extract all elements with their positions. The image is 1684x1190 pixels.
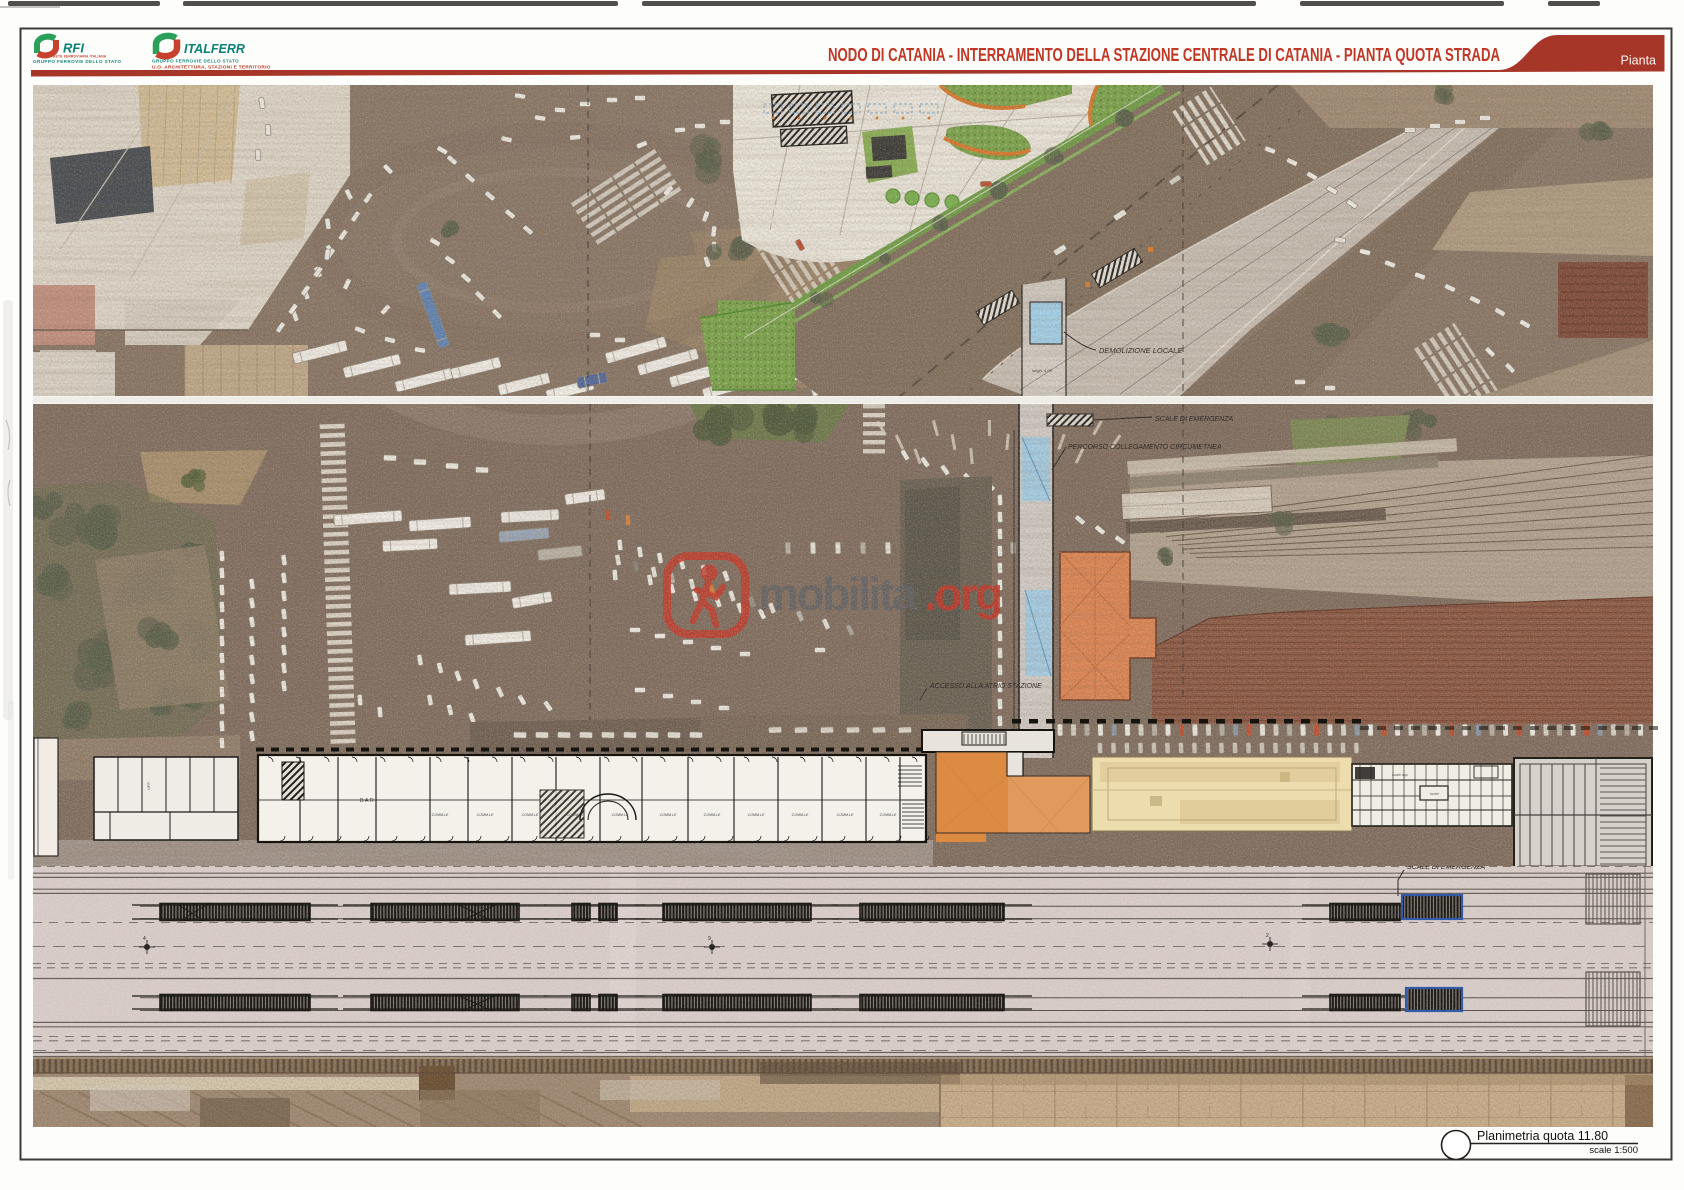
svg-text:COMM.LE: COMM.LE	[660, 813, 677, 817]
svg-text:COMM.LE: COMM.LE	[748, 813, 765, 817]
svg-text:locale app.: locale app.	[1392, 773, 1408, 777]
svg-text:COMM.LE: COMM.LE	[432, 813, 449, 817]
svg-text:B A R: B A R	[360, 798, 374, 804]
svg-text:lungh. 4.00: lungh. 4.00	[1032, 368, 1053, 373]
svg-text:SCALE DI EMERGENZA: SCALE DI EMERGENZA	[1155, 416, 1234, 423]
svg-text:COMM.LE: COMM.LE	[704, 813, 721, 817]
svg-text:COMM.LE: COMM.LE	[522, 813, 539, 817]
svg-text:COMM.LE: COMM.LE	[792, 813, 809, 817]
svg-text:.org: .org	[924, 568, 1001, 620]
svg-text:ACCESSO ALLA ATRIO STAZIONE: ACCESSO ALLA ATRIO STAZIONE	[929, 683, 1042, 690]
svg-text:COMM.LE: COMM.LE	[837, 813, 854, 817]
svg-text:Pianta: Pianta	[1621, 54, 1656, 68]
svg-text:NODO DI CATANIA - INTERRAMENTO: NODO DI CATANIA - INTERRAMENTO DELLA STA…	[828, 45, 1500, 65]
svg-text:UFF.: UFF.	[146, 782, 151, 790]
svg-text:ITALFERR: ITALFERR	[184, 42, 245, 56]
svg-text:scale 1:500: scale 1:500	[1589, 1145, 1638, 1156]
svg-text:mobilita: mobilita	[758, 568, 918, 620]
svg-text:PERCORSO COLLEGAMENTO CIRCUMET: PERCORSO COLLEGAMENTO CIRCUMETNEA	[1068, 444, 1222, 451]
svg-text:4: 4	[143, 936, 146, 942]
svg-text:RETE FERROVIARIA ITALIANA: RETE FERROVIARIA ITALIANA	[53, 55, 107, 59]
svg-text:GRUPPO FERROVIE DELLO STATO: GRUPPO FERROVIE DELLO STATO	[152, 59, 239, 64]
svg-text:DEMOLIZIONE LOCALE: DEMOLIZIONE LOCALE	[1099, 346, 1183, 355]
svg-text:9: 9	[708, 936, 711, 942]
svg-text:COMM.LE: COMM.LE	[567, 813, 584, 817]
svg-text:locale: locale	[1430, 792, 1439, 796]
svg-text:U.O. ARCHITETTURA, STAZIONI E: U.O. ARCHITETTURA, STAZIONI E TERRITORIO	[152, 65, 271, 71]
svg-text:2: 2	[1266, 933, 1269, 939]
svg-text:COMM.LE: COMM.LE	[880, 813, 897, 817]
svg-text:COMM.LE: COMM.LE	[612, 813, 629, 817]
svg-text:GRUPPO FERROVIE DELLO STATO: GRUPPO FERROVIE DELLO STATO	[33, 59, 121, 64]
svg-text:RFI: RFI	[63, 41, 84, 56]
svg-text:COMM.LE: COMM.LE	[477, 813, 494, 817]
svg-text:Planimetria quota 11.80: Planimetria quota 11.80	[1477, 1129, 1608, 1143]
